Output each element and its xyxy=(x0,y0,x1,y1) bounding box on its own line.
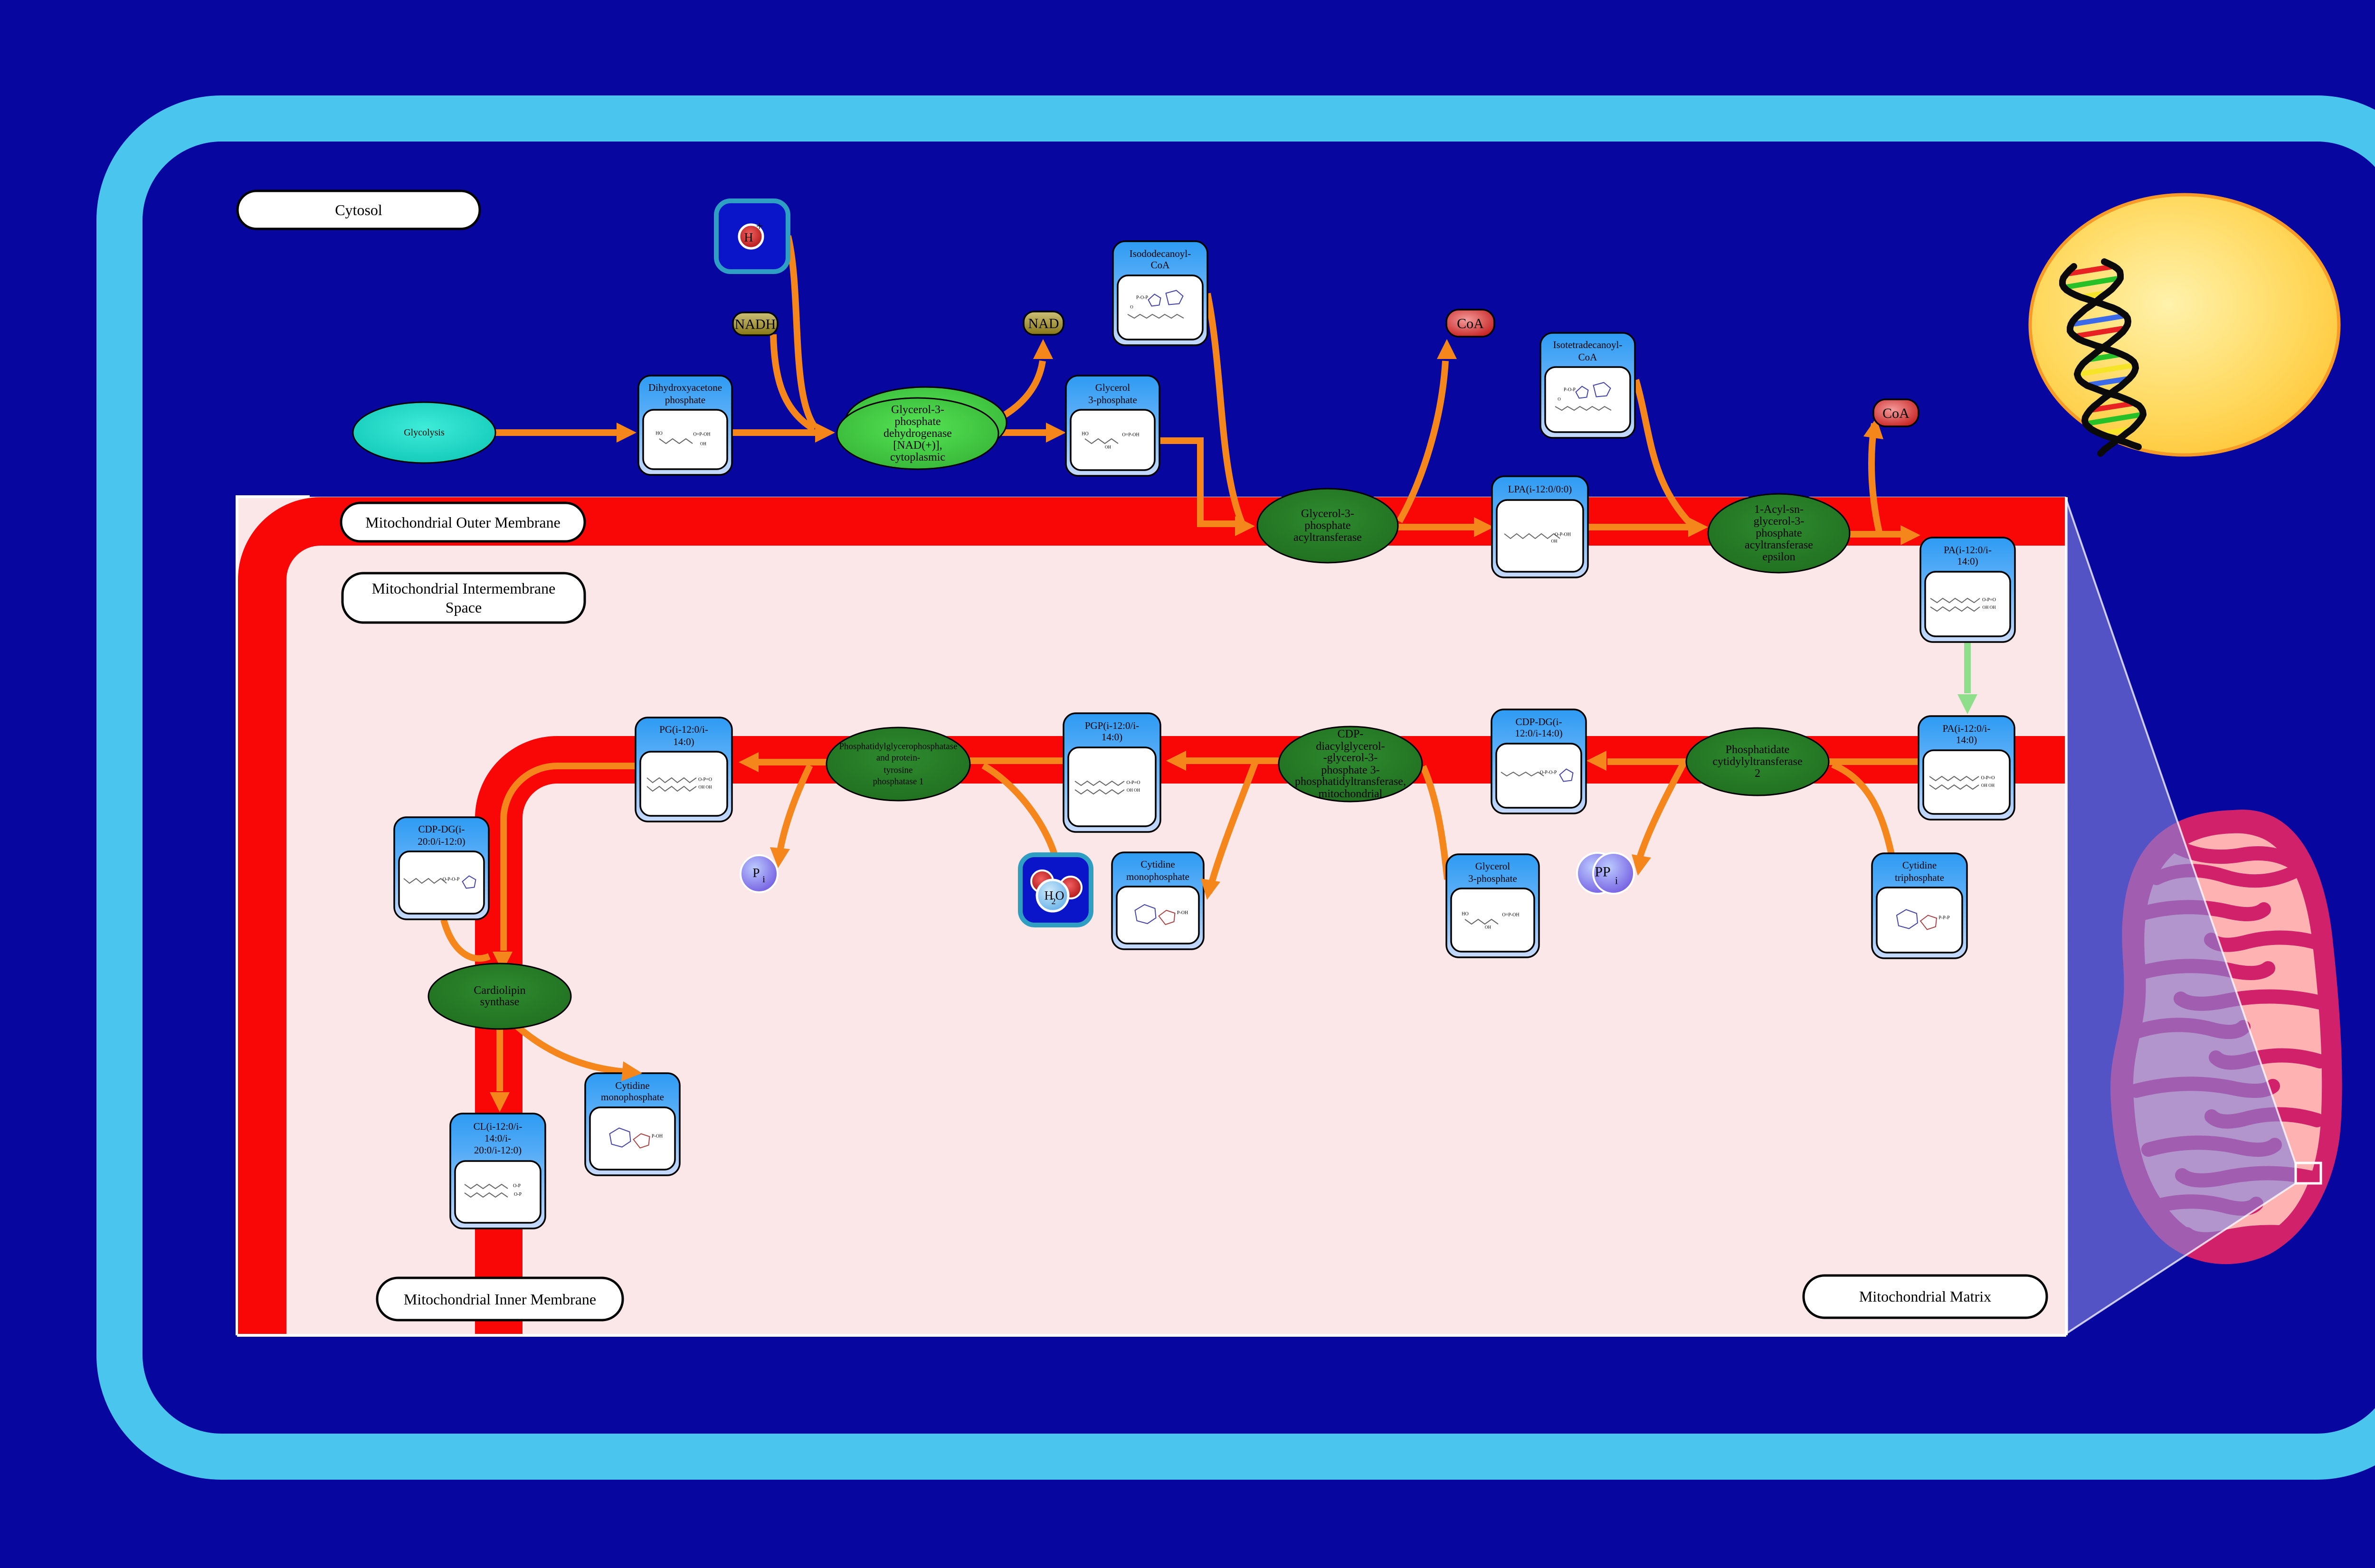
svg-text:3-phosphate: 3-phosphate xyxy=(1468,873,1517,884)
svg-text:O-P=O: O-P=O xyxy=(1982,597,1996,603)
svg-text:O-P=O: O-P=O xyxy=(1981,775,1995,781)
svg-text:Glycerol: Glycerol xyxy=(1475,860,1510,872)
svg-text:cytoplasmic: cytoplasmic xyxy=(890,451,945,463)
svg-text:PA(i-12:0/i-: PA(i-12:0/i- xyxy=(1944,544,1992,556)
svg-text:Phosphatidylglycerophosphatase: Phosphatidylglycerophosphatase xyxy=(839,742,957,752)
svg-text:glycerol-3-: glycerol-3- xyxy=(1754,515,1805,528)
svg-text:[NAD(+)],: [NAD(+)], xyxy=(893,439,942,452)
svg-text:14:0): 14:0) xyxy=(673,736,694,747)
svg-text:Glycolysis: Glycolysis xyxy=(404,427,445,438)
svg-text:CDP-: CDP- xyxy=(1338,728,1364,740)
svg-text:PGP(i-12:0/i-: PGP(i-12:0/i- xyxy=(1085,720,1139,731)
svg-text:12:0/i-14:0): 12:0/i-14:0) xyxy=(1515,727,1562,739)
svg-text:OH OH: OH OH xyxy=(1127,788,1140,793)
svg-text:Space: Space xyxy=(446,599,482,616)
svg-text:acyltransferase: acyltransferase xyxy=(1293,531,1362,544)
svg-text:monophosphate: monophosphate xyxy=(601,1091,664,1103)
svg-text:Cytidine: Cytidine xyxy=(615,1080,649,1091)
svg-text:14:0): 14:0) xyxy=(1956,734,1977,746)
svg-text:cytidylyltransferase: cytidylyltransferase xyxy=(1712,756,1802,768)
svg-text:CL(i-12:0/i-: CL(i-12:0/i- xyxy=(474,1121,522,1132)
svg-text:3-phosphate: 3-phosphate xyxy=(1088,394,1137,406)
svg-text:Cytidine: Cytidine xyxy=(1902,860,1937,871)
svg-text:CoA: CoA xyxy=(1151,259,1170,271)
svg-text:OH: OH xyxy=(700,442,706,446)
svg-text:phosphate: phosphate xyxy=(894,416,940,428)
svg-text:CDP-DG(i-: CDP-DG(i- xyxy=(1516,716,1562,727)
svg-text:14:0/i-: 14:0/i- xyxy=(484,1133,511,1144)
svg-text:O=P-OH: O=P-OH xyxy=(1122,433,1139,438)
svg-text:phosphate: phosphate xyxy=(665,394,705,406)
svg-text:Cardiolipin: Cardiolipin xyxy=(474,984,525,997)
svg-text:P-O-P: P-O-P xyxy=(1136,295,1148,301)
svg-text:P-OH: P-OH xyxy=(1177,910,1188,916)
svg-text:20:0/i-12:0): 20:0/i-12:0) xyxy=(474,1144,522,1156)
svg-text:Glycerol-3-: Glycerol-3- xyxy=(1301,508,1354,520)
svg-text:synthase: synthase xyxy=(480,996,520,1008)
svg-text:OH OH: OH OH xyxy=(1981,783,1995,788)
svg-text:i: i xyxy=(762,874,765,885)
svg-text:P-O-P: P-O-P xyxy=(1564,387,1576,393)
svg-text:P-P-P: P-P-P xyxy=(1938,916,1950,921)
svg-text:epsilon: epsilon xyxy=(1762,551,1795,563)
svg-text:acyltransferase: acyltransferase xyxy=(1745,539,1813,551)
svg-text:CoA: CoA xyxy=(1578,351,1598,363)
svg-text:20:0/i-12:0): 20:0/i-12:0) xyxy=(418,836,465,847)
svg-text:O: O xyxy=(1055,889,1064,903)
svg-text:O-P: O-P xyxy=(513,1183,521,1189)
svg-text:monophosphate: monophosphate xyxy=(1126,871,1189,882)
svg-text:PP: PP xyxy=(1595,864,1610,880)
svg-text:Glycerol-3-: Glycerol-3- xyxy=(891,404,944,416)
svg-text:PG(i-12:0/i-: PG(i-12:0/i- xyxy=(659,724,708,735)
svg-text:P: P xyxy=(752,866,760,880)
svg-text:O=P-OH: O=P-OH xyxy=(1502,913,1519,918)
svg-text:H: H xyxy=(744,231,753,245)
svg-text:phosphatidyltransferase,: phosphatidyltransferase, xyxy=(1295,775,1406,788)
svg-text:phosphate: phosphate xyxy=(1756,527,1802,539)
svg-text:OH OH: OH OH xyxy=(1982,605,1996,610)
svg-text:PA(i-12:0/i-: PA(i-12:0/i- xyxy=(1943,723,1991,734)
svg-text:Phosphatidate: Phosphatidate xyxy=(1726,744,1790,756)
svg-text:OH: OH xyxy=(1485,925,1491,930)
svg-text:Mitochondrial Intermembrane: Mitochondrial Intermembrane xyxy=(372,580,556,597)
svg-text:phosphate: phosphate xyxy=(1304,520,1350,532)
svg-text:O: O xyxy=(1558,397,1561,402)
svg-text:Mitochondrial Inner Membrane: Mitochondrial Inner Membrane xyxy=(404,1291,596,1308)
svg-text:CDP-DG(i-: CDP-DG(i- xyxy=(418,823,465,835)
svg-text:CoA: CoA xyxy=(1457,316,1484,331)
svg-text:HO: HO xyxy=(1082,432,1088,437)
svg-text:Mitochondrial Outer Membrane: Mitochondrial Outer Membrane xyxy=(365,514,560,531)
svg-text:O=P-OH: O=P-OH xyxy=(693,432,710,437)
svg-text:Glycerol: Glycerol xyxy=(1095,382,1130,393)
svg-text:dehydrogenase: dehydrogenase xyxy=(883,427,952,440)
svg-text:LPA(i-12:0/0:0): LPA(i-12:0/0:0) xyxy=(1508,483,1572,495)
svg-text:O-P-O-P: O-P-O-P xyxy=(443,877,460,882)
svg-text:and protein-: and protein- xyxy=(876,753,920,763)
svg-text:P-OH: P-OH xyxy=(652,1134,663,1139)
svg-text:O-P=O: O-P=O xyxy=(1127,780,1140,785)
svg-text:OH: OH xyxy=(1551,539,1558,544)
svg-text:Cytidine: Cytidine xyxy=(1140,859,1175,870)
svg-text:-glycerol-3-: -glycerol-3- xyxy=(1323,752,1378,764)
svg-text:Dihydroxyacetone: Dihydroxyacetone xyxy=(648,382,722,393)
svg-text:NAD: NAD xyxy=(1028,316,1059,331)
svg-text:mitochondrial: mitochondrial xyxy=(1319,788,1383,800)
svg-text:O: O xyxy=(1130,305,1133,310)
svg-text:OH: OH xyxy=(1105,445,1111,450)
svg-text:2: 2 xyxy=(1755,767,1760,780)
svg-text:i: i xyxy=(1615,875,1618,887)
svg-text:Isotetradecanoyl-: Isotetradecanoyl- xyxy=(1553,339,1623,350)
svg-text:O-P: O-P xyxy=(514,1192,522,1197)
svg-text:CoA: CoA xyxy=(1882,406,1909,421)
svg-text:tyrosine: tyrosine xyxy=(883,765,912,775)
svg-text:HO: HO xyxy=(1462,912,1468,917)
svg-text:triphosphate: triphosphate xyxy=(1895,872,1944,883)
svg-text:1-Acyl-sn-: 1-Acyl-sn- xyxy=(1754,503,1804,516)
svg-text:+: + xyxy=(756,219,763,233)
svg-text:phosphate 3-: phosphate 3- xyxy=(1321,764,1379,776)
svg-text:O-P=O: O-P=O xyxy=(698,777,712,783)
svg-text:OH OH: OH OH xyxy=(698,785,712,790)
svg-text:Mitochondrial Matrix: Mitochondrial Matrix xyxy=(1859,1288,1991,1305)
svg-text:Isododecanoyl-: Isododecanoyl- xyxy=(1130,248,1191,259)
svg-text:diacylglycerol-: diacylglycerol- xyxy=(1316,740,1385,753)
svg-text:Cytosol: Cytosol xyxy=(335,201,382,218)
svg-text:14:0): 14:0) xyxy=(1957,556,1978,567)
svg-text:NADH: NADH xyxy=(735,317,776,332)
svg-text:HO: HO xyxy=(655,431,662,436)
svg-text:O-P-OH: O-P-OH xyxy=(1555,532,1571,538)
svg-text:14:0): 14:0) xyxy=(1102,731,1122,743)
svg-text:O-P-O-P: O-P-O-P xyxy=(1540,770,1557,775)
svg-text:phosphatase 1: phosphatase 1 xyxy=(873,777,923,787)
